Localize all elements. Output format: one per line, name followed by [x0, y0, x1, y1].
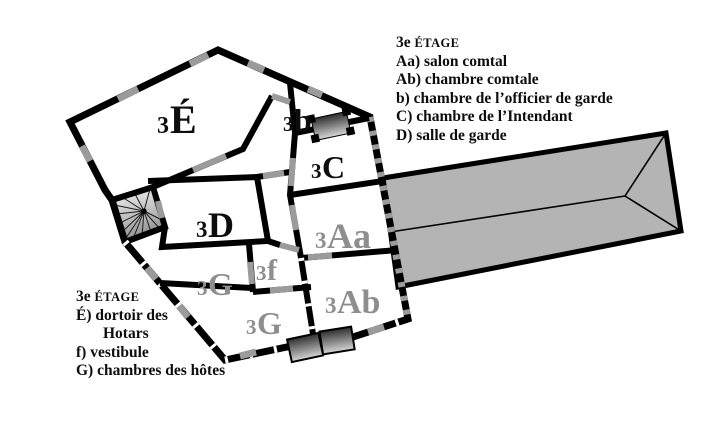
room-label-3ab: Ab	[337, 284, 380, 321]
room-label-3g-lower: G	[257, 305, 282, 341]
room-label-3b-prefix: 3	[283, 112, 294, 136]
room-label-3g-lower-prefix: 3	[246, 315, 257, 339]
room-label-3e: É	[170, 97, 197, 142]
room-label-3aa: Aa	[327, 216, 371, 256]
legend-item: b) chambre de l’officier de garde	[396, 90, 613, 109]
legend-item: D) salle de garde	[396, 127, 613, 146]
room-label-3aa-prefix: 3	[315, 228, 327, 253]
fireplace-bottom-left	[287, 333, 323, 362]
room-label-3f-prefix: 3	[256, 261, 267, 285]
room-label-3d: D	[208, 205, 234, 245]
legend-bottom-left: 3e ÉTAGE É) dortoir des Hotars f) vestib…	[76, 288, 225, 381]
staircase-newel	[141, 208, 146, 213]
wall-3f-top	[268, 241, 280, 245]
legend-top-right-title: 3e ÉTAGE	[396, 34, 613, 53]
room-label-3b: b	[294, 102, 312, 138]
legend-item: Ab) chambre comtale	[396, 71, 613, 90]
legend-bottom-left-title: 3e ÉTAGE	[76, 288, 225, 307]
fireplace-bottom-right	[319, 327, 354, 355]
legend-item: Aa) salon comtal	[396, 53, 613, 72]
room-label-3f: f	[267, 254, 278, 287]
legend-item: G) chambres des hôtes	[76, 362, 225, 381]
room-label-3c: C	[322, 149, 345, 185]
legend-item: Hotars	[76, 325, 225, 344]
floor-plan-page: 3 É 3 b 3 C 3 D 3 Aa 3 Ab 3 G 3 f 3 G 3e…	[0, 0, 717, 428]
legend-item: C) chambre de l’Intendant	[396, 108, 613, 127]
legend-top-right: 3e ÉTAGE Aa) salon comtal Ab) chambre co…	[396, 34, 613, 145]
legend-item: É) dortoir des	[76, 307, 225, 326]
room-label-3e-prefix: 3	[157, 113, 169, 139]
room-label-3ab-prefix: 3	[325, 293, 337, 318]
fireplace-3b-3c	[306, 107, 355, 144]
roof	[383, 133, 681, 287]
room-label-3d-prefix: 3	[196, 217, 208, 242]
room-label-3c-prefix: 3	[311, 159, 322, 183]
legend-item: f) vestibule	[76, 344, 225, 363]
